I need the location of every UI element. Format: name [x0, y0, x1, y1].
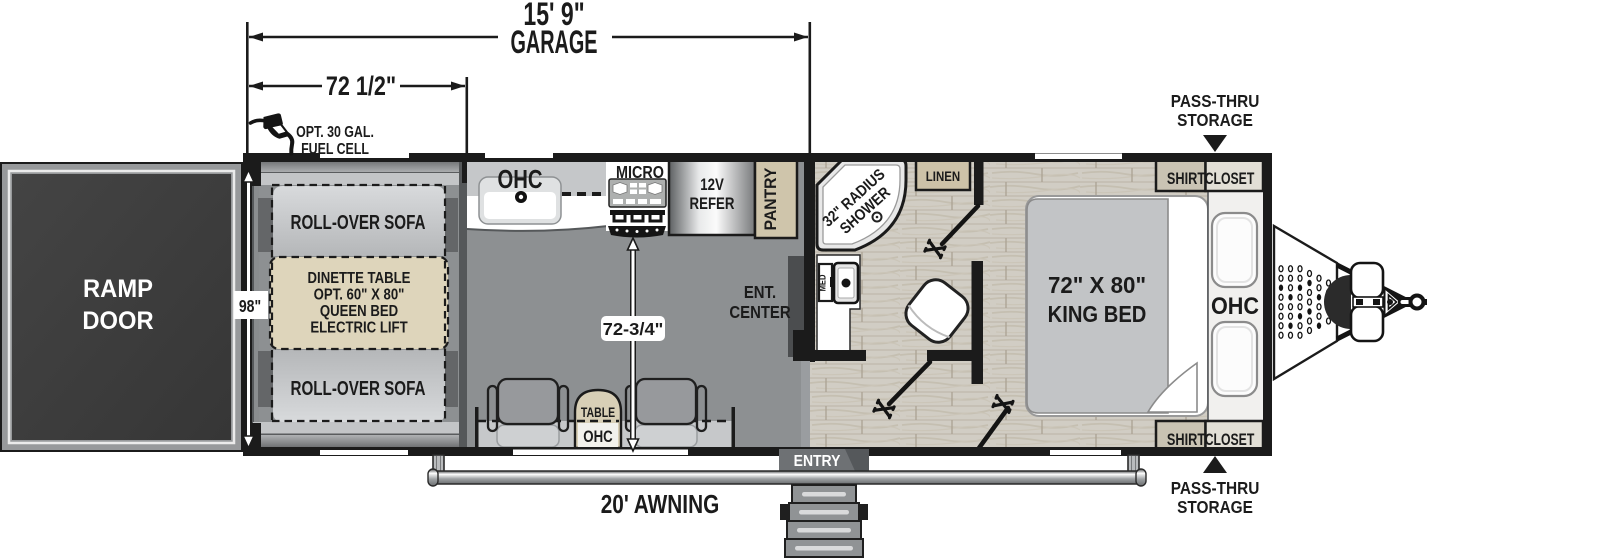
svg-text:98": 98" [239, 296, 261, 316]
svg-text:PANTRY: PANTRY [762, 167, 780, 230]
svg-text:KING BED: KING BED [1048, 301, 1147, 328]
svg-text:ROLL-OVER SOFA: ROLL-OVER SOFA [290, 377, 425, 400]
svg-text:SHIRT: SHIRT [1167, 169, 1206, 188]
svg-text:12V: 12V [700, 176, 724, 195]
svg-text:TABLE: TABLE [581, 405, 615, 421]
svg-text:OHC: OHC [1211, 292, 1259, 319]
svg-text:DOOR: DOOR [82, 307, 154, 335]
svg-text:OHC: OHC [583, 428, 612, 447]
svg-text:20' AWNING: 20' AWNING [601, 490, 720, 519]
svg-text:ENT.: ENT. [744, 283, 776, 302]
svg-text:STORAGE: STORAGE [1177, 498, 1253, 517]
svg-text:SHIRT: SHIRT [1167, 430, 1206, 449]
svg-text:ELECTRIC LIFT: ELECTRIC LIFT [310, 320, 407, 337]
svg-text:CLOSET: CLOSET [1205, 170, 1255, 188]
svg-text:RAMP: RAMP [83, 275, 153, 303]
svg-text:STORAGE: STORAGE [1177, 111, 1253, 130]
svg-text:FUEL CELL: FUEL CELL [301, 140, 369, 158]
svg-text:CLOSET: CLOSET [1205, 431, 1255, 449]
svg-text:LINEN: LINEN [926, 169, 960, 184]
svg-text:PASS-THRU: PASS-THRU [1171, 479, 1260, 498]
svg-text:OPT. 30 GAL.: OPT. 30 GAL. [296, 123, 374, 141]
svg-text:72" X 80": 72" X 80" [1048, 271, 1146, 298]
svg-text:CENTER: CENTER [729, 303, 790, 322]
svg-text:ROLL-OVER SOFA: ROLL-OVER SOFA [290, 211, 425, 234]
svg-text:QUEEN BED: QUEEN BED [320, 303, 398, 320]
svg-text:PASS-THRU: PASS-THRU [1171, 92, 1260, 111]
svg-text:GARAGE: GARAGE [510, 24, 597, 60]
svg-text:ENTRY: ENTRY [794, 453, 841, 470]
svg-text:MED: MED [817, 275, 828, 292]
svg-text:REFER: REFER [690, 195, 735, 214]
svg-text:DINETTE TABLE: DINETTE TABLE [308, 270, 411, 287]
svg-text:72-3/4": 72-3/4" [603, 319, 664, 339]
svg-text:72 1/2": 72 1/2" [326, 72, 396, 102]
svg-text:OPT. 60" X 80": OPT. 60" X 80" [314, 287, 405, 304]
svg-text:OHC: OHC [497, 165, 542, 194]
